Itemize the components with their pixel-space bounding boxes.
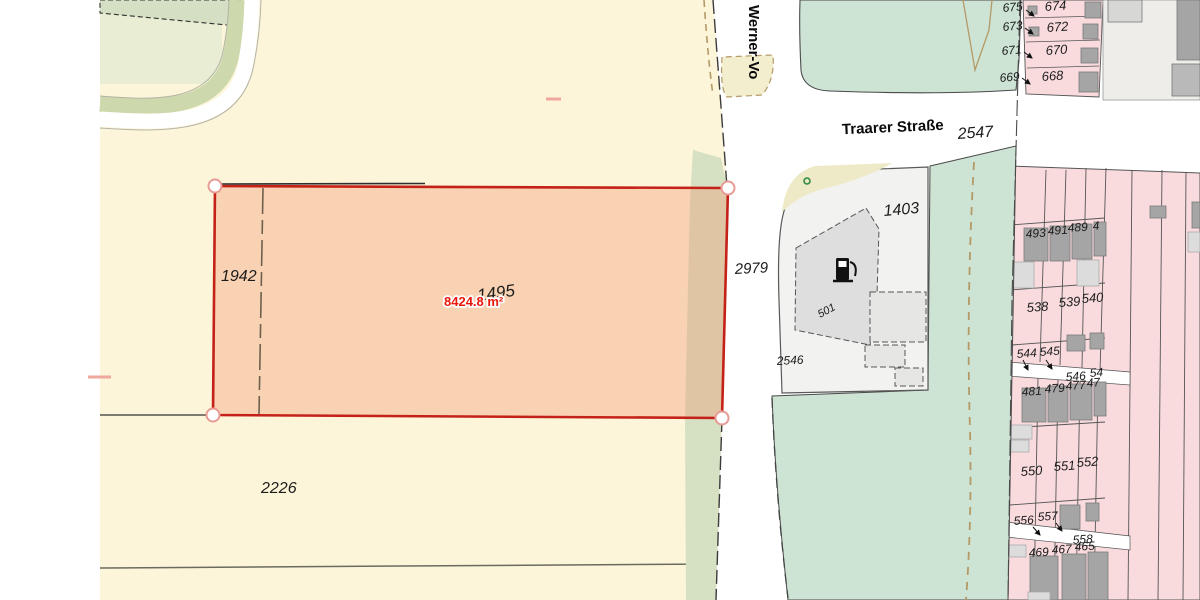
parcel-label-2226: 2226	[260, 480, 297, 497]
parcel-label-551: 551	[1053, 458, 1076, 474]
parcel-label-552: 552	[1076, 453, 1099, 470]
street-label-Traarer Straße: Traarer Straße	[842, 117, 944, 138]
parcel-label-491: 491	[1047, 223, 1068, 238]
parcel-label-481: 481	[1021, 384, 1042, 399]
parcel-label-2546: 2546	[775, 353, 804, 368]
parcel-label-477: 477	[1065, 378, 1087, 393]
mint-block-top	[800, 0, 1021, 93]
parcel-label-538: 538	[1026, 298, 1049, 315]
parcel-label-670: 670	[1045, 41, 1068, 58]
measurement-label-8424.8 m²: 8424.8 m²	[444, 294, 504, 309]
parcel-label-489: 489	[1067, 220, 1088, 235]
parcel-label-1942: 1942	[221, 268, 257, 285]
parcel-label-479: 479	[1044, 381, 1065, 396]
parcel-label-671: 671	[1001, 42, 1022, 58]
parcel-label-1403: 1403	[883, 200, 920, 220]
parcel-label-673: 673	[1002, 18, 1023, 34]
parcel-label-540: 540	[1081, 289, 1104, 306]
parcel-label-539: 539	[1058, 294, 1081, 310]
parcel-label-672: 672	[1046, 18, 1069, 35]
map-viewport[interactable]: Werner-VoTraarer Straße25471942222614958…	[0, 0, 1200, 600]
parcel-label-467: 467	[1051, 542, 1073, 557]
parcel-label-493: 493	[1025, 226, 1046, 241]
parcel-label-47: 47	[1086, 375, 1102, 390]
parcel-label-545: 545	[1039, 344, 1060, 359]
parcel-label-2547: 2547	[956, 123, 995, 143]
parcel-label-669: 669	[999, 69, 1020, 85]
parcel-label-675: 675	[1002, 0, 1023, 15]
parcel-label-465: 465	[1074, 539, 1095, 554]
parcel-label-544: 544	[1016, 346, 1037, 361]
parcel-label-668: 668	[1041, 67, 1064, 84]
parcel-label-2979: 2979	[733, 259, 769, 278]
parcel-label-4: 4	[1092, 219, 1100, 233]
parcel-top-black-edge	[216, 184, 425, 185]
parcel-label-557: 557	[1037, 509, 1059, 524]
parcel-label-674: 674	[1044, 0, 1067, 14]
street-label-Werner-Vo: Werner-Vo	[745, 5, 762, 79]
parcel-label-550: 550	[1020, 462, 1043, 479]
cadastral-map-canvas[interactable]: Werner-VoTraarer Straße25471942222614958…	[0, 0, 1200, 600]
parcel-label-556: 556	[1013, 513, 1034, 528]
parcel-label-469: 469	[1028, 545, 1049, 560]
